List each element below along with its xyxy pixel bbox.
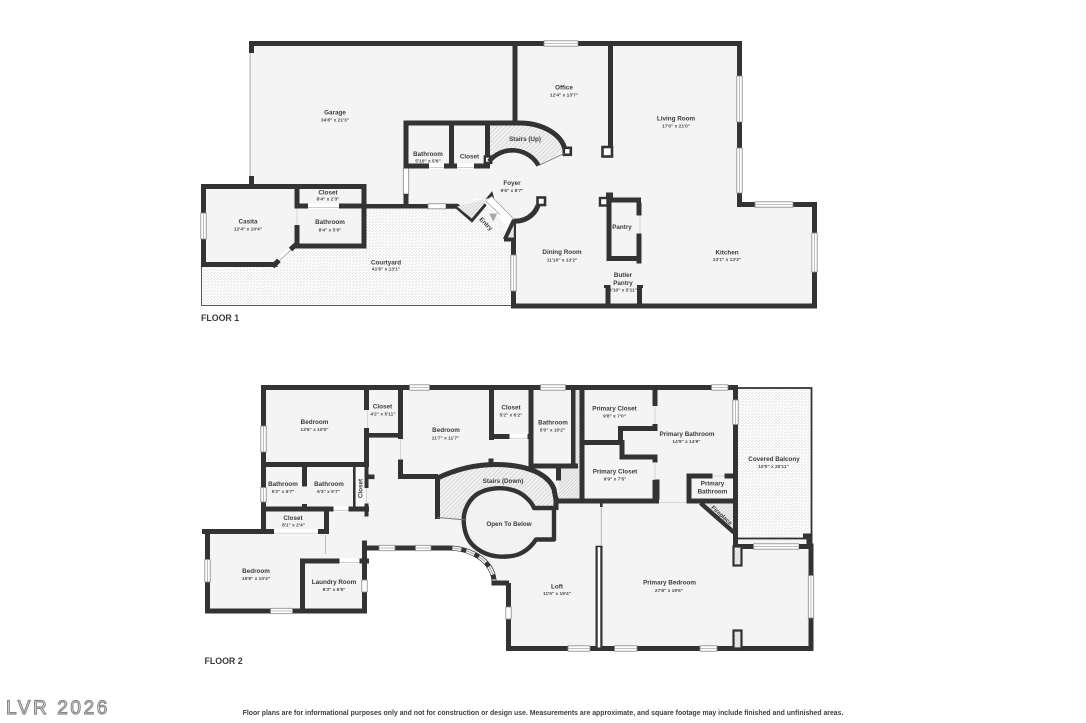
svg-text:Stairs (Down): Stairs (Down) (483, 478, 524, 485)
svg-text:Bathroom: Bathroom (314, 481, 344, 488)
svg-text:8'3" x 6'5": 8'3" x 6'5" (323, 587, 346, 593)
svg-text:Primary Bathroom: Primary Bathroom (660, 431, 715, 438)
svg-text:Closet: Closet (373, 404, 393, 411)
svg-text:Garage: Garage (324, 110, 346, 117)
svg-text:Covered Balcony: Covered Balcony (748, 456, 800, 463)
svg-text:FLOOR 2: FLOOR 2 (205, 656, 243, 666)
svg-text:Pantry: Pantry (612, 224, 632, 231)
svg-text:Bathroom: Bathroom (268, 481, 298, 488)
svg-text:5'2" x 5'7": 5'2" x 5'7" (272, 489, 295, 495)
svg-text:Loft: Loft (551, 584, 564, 591)
svg-text:14'9" x 14'9": 14'9" x 14'9" (672, 439, 700, 445)
svg-text:Bedroom: Bedroom (301, 419, 329, 426)
svg-text:Closet: Closet (283, 515, 303, 522)
svg-text:Bathroom: Bathroom (698, 489, 728, 496)
svg-text:13'6" x 10'0": 13'6" x 10'0" (300, 427, 328, 433)
svg-text:Living Room: Living Room (657, 116, 696, 123)
svg-text:Laundry Room: Laundry Room (312, 579, 357, 586)
svg-text:LVR 2026: LVR 2026 (6, 698, 110, 719)
svg-text:9'9" x 7'5": 9'9" x 7'5" (604, 477, 627, 483)
svg-text:Bathroom: Bathroom (413, 151, 443, 158)
svg-text:Office: Office (555, 85, 573, 92)
svg-text:FLOOR 1: FLOOR 1 (201, 313, 239, 323)
svg-text:Open To Below: Open To Below (486, 521, 531, 528)
svg-text:10'0" x 20'11": 10'0" x 20'11" (758, 464, 789, 470)
svg-text:11'7" x 11'7": 11'7" x 11'7" (432, 436, 460, 442)
svg-text:Floor plans are for informatio: Floor plans are for informational purpos… (243, 710, 844, 717)
svg-text:8'4" x 2'3": 8'4" x 2'3" (317, 197, 340, 203)
svg-text:Dining Room: Dining Room (542, 249, 582, 256)
svg-text:Bathroom: Bathroom (315, 219, 345, 226)
svg-text:Courtyard: Courtyard (371, 259, 401, 266)
svg-text:Butler: Butler (614, 272, 633, 279)
svg-text:34'8" x 21'3": 34'8" x 21'3" (321, 118, 349, 124)
svg-text:3'10" x 5'11": 3'10" x 5'11" (609, 288, 637, 294)
svg-text:5'10" x 5'6": 5'10" x 5'6" (415, 159, 441, 165)
svg-text:9'8" x 7'0": 9'8" x 7'0" (603, 414, 626, 420)
svg-text:11'5" x 19'4": 11'5" x 19'4" (543, 591, 571, 597)
svg-text:8'4" x 5'0": 8'4" x 5'0" (319, 228, 342, 234)
svg-text:12'4" x 10'4": 12'4" x 10'4" (234, 227, 262, 233)
svg-text:5'0" x 10'2": 5'0" x 10'2" (540, 428, 566, 434)
svg-text:Bathroom: Bathroom (538, 420, 568, 427)
svg-text:Primary Closet: Primary Closet (593, 469, 638, 476)
svg-text:27'8" x 19'6": 27'8" x 19'6" (655, 588, 683, 594)
svg-text:Closet: Closet (357, 478, 364, 498)
svg-text:41'6" x 13'1": 41'6" x 13'1" (372, 267, 400, 273)
svg-text:Closet: Closet (460, 154, 480, 161)
svg-text:4'2" x 5'11": 4'2" x 5'11" (370, 412, 395, 418)
svg-text:Stairs (Up): Stairs (Up) (509, 136, 541, 143)
svg-text:Closet: Closet (318, 190, 338, 197)
svg-text:Bedroom: Bedroom (242, 568, 270, 575)
svg-text:5'2" x 6'2": 5'2" x 6'2" (500, 413, 523, 419)
svg-text:Casita: Casita (239, 219, 258, 226)
svg-text:17'0" x 21'0": 17'0" x 21'0" (662, 124, 690, 130)
svg-text:11'10" x 13'2": 11'10" x 13'2" (547, 258, 578, 264)
svg-text:Closet: Closet (501, 405, 521, 412)
svg-text:Kitchen: Kitchen (715, 250, 738, 257)
svg-text:Pantry: Pantry (613, 280, 633, 287)
svg-text:Primary Closet: Primary Closet (592, 406, 637, 413)
svg-text:8'1" x 2'4": 8'1" x 2'4" (282, 523, 305, 529)
svg-text:15'8" x 10'4": 15'8" x 10'4" (242, 576, 270, 582)
svg-text:Foyer: Foyer (503, 180, 521, 187)
svg-text:Bedroom: Bedroom (432, 427, 460, 434)
svg-text:23'1" x 13'3": 23'1" x 13'3" (713, 257, 741, 263)
svg-text:12'4" x 13'7": 12'4" x 13'7" (550, 93, 578, 99)
svg-text:6'6" x 8'7": 6'6" x 8'7" (501, 188, 524, 194)
svg-text:6'3" x 5'7": 6'3" x 5'7" (317, 489, 340, 495)
svg-text:Primary Bedroom: Primary Bedroom (643, 580, 696, 587)
svg-text:Primary: Primary (701, 481, 725, 488)
